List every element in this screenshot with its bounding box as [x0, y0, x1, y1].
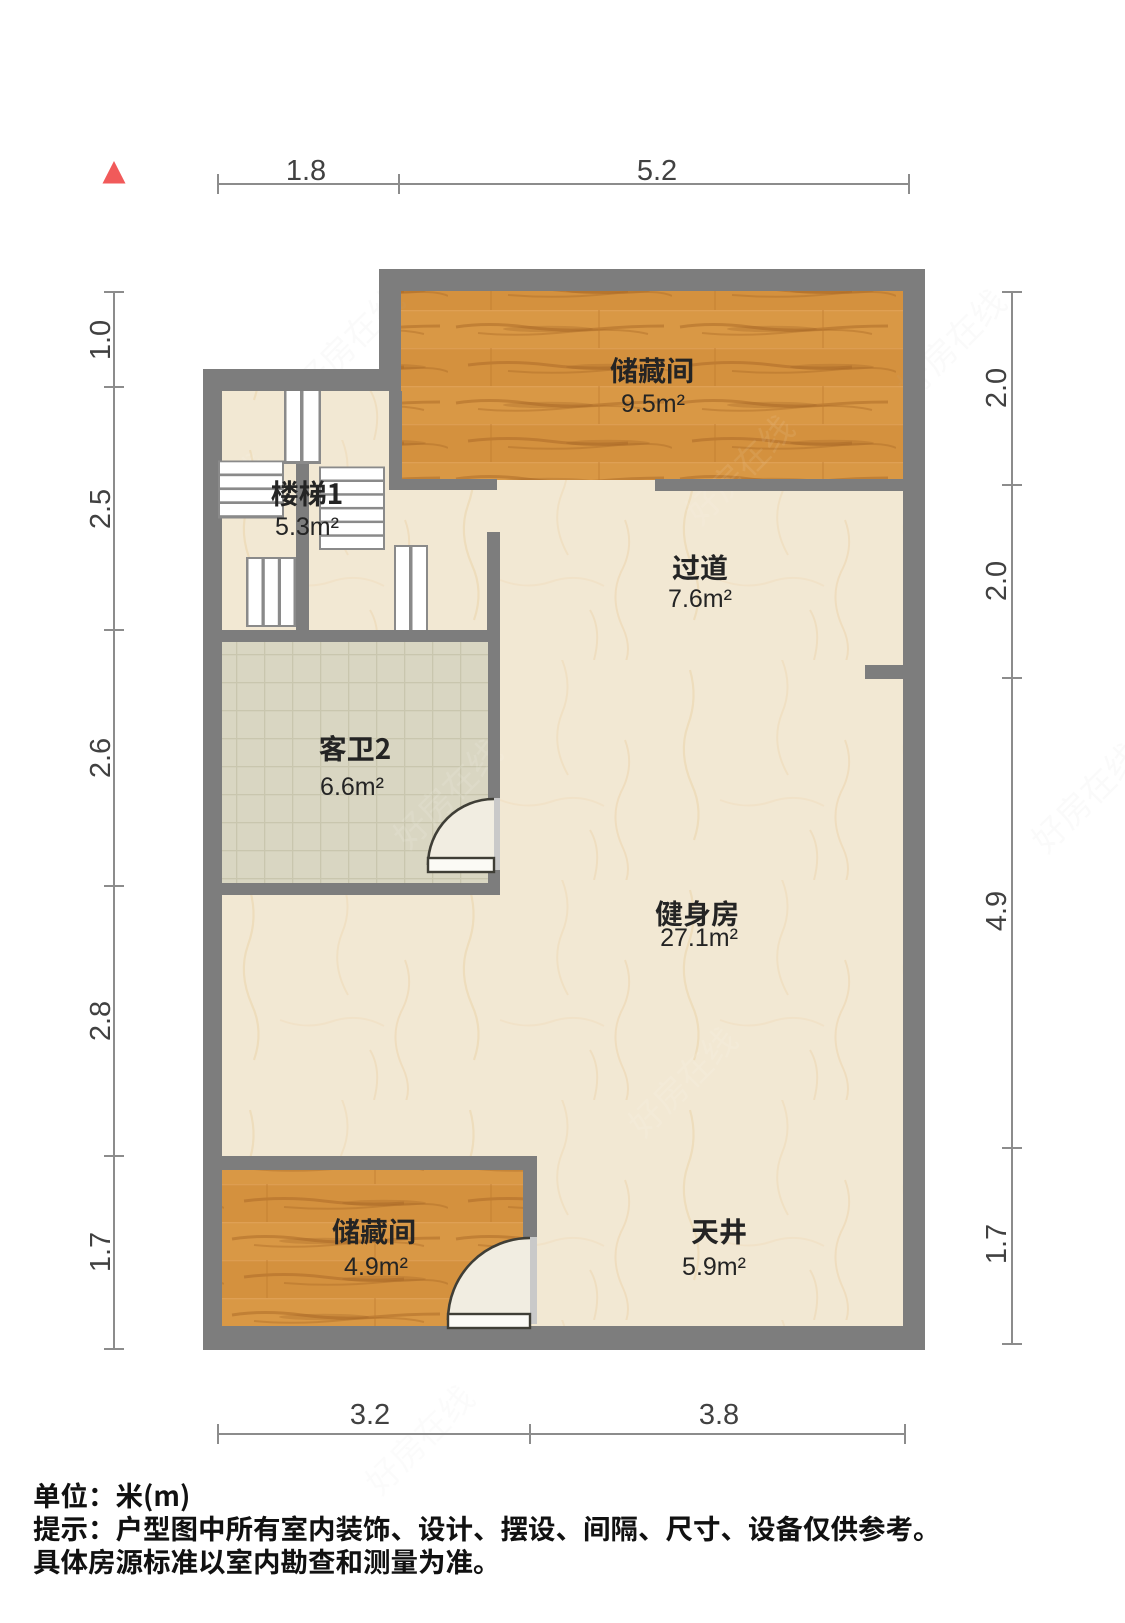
svg-text:27.1m²: 27.1m²: [660, 924, 738, 952]
svg-text:1.0: 1.0: [85, 320, 117, 360]
svg-text:5.9m²: 5.9m²: [682, 1253, 746, 1281]
svg-text:2.0: 2.0: [981, 561, 1013, 601]
svg-text:1.8: 1.8: [286, 155, 326, 187]
svg-text:9.5m²: 9.5m²: [621, 390, 685, 418]
svg-text:7.6m²: 7.6m²: [668, 585, 732, 613]
svg-text:5.2: 5.2: [637, 155, 677, 187]
svg-text:3.8: 3.8: [699, 1399, 739, 1431]
svg-text:4.9m²: 4.9m²: [344, 1253, 408, 1281]
svg-text:1.7: 1.7: [981, 1224, 1013, 1264]
svg-text:3.2: 3.2: [350, 1399, 390, 1431]
svg-text:5.3m²: 5.3m²: [275, 513, 339, 541]
svg-text:2.8: 2.8: [85, 1001, 117, 1041]
svg-text:2.0: 2.0: [981, 368, 1013, 408]
svg-text:6.6m²: 6.6m²: [320, 773, 384, 801]
svg-text:4.9: 4.9: [981, 891, 1013, 931]
svg-text:2.5: 2.5: [85, 489, 117, 529]
svg-text:1.7: 1.7: [85, 1232, 117, 1272]
svg-text:2.6: 2.6: [85, 738, 117, 778]
